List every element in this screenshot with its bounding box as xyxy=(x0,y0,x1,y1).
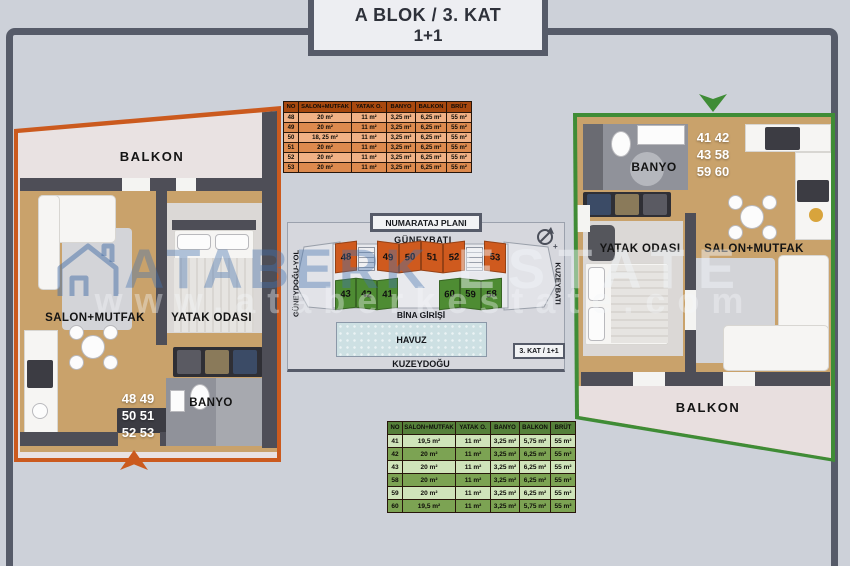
compass-icon: + xyxy=(534,226,560,252)
site-unit-green: 59 xyxy=(460,278,481,311)
table-row: 5018, 25 m²11 m²3,25 m²6,25 m²55 m² xyxy=(284,133,472,143)
table-cell: 3,25 m² xyxy=(491,435,520,448)
table-header: BALKON xyxy=(520,422,551,435)
table-header-row: NOSALON+MUTFAKYATAK O.BANYOBALKONBRÜT xyxy=(284,102,472,113)
table-cell: 3,25 m² xyxy=(491,474,520,487)
table-row: 5820 m²11 m²3,25 m²6,25 m²55 m² xyxy=(388,474,576,487)
right-floorplan: BANYO xyxy=(573,113,835,465)
balcony-door xyxy=(633,372,665,386)
table-row: 4320 m²11 m²3,25 m²6,25 m²55 m² xyxy=(388,461,576,474)
table-cell: 55 m² xyxy=(447,133,472,143)
table-cell: 3,25 m² xyxy=(491,500,520,513)
table-cell: 19,5 m² xyxy=(403,500,456,513)
green-area-table: NOSALON+MUTFAKYATAK O.BANYOBALKONBRÜT411… xyxy=(387,421,576,513)
table-cell: 58 xyxy=(388,474,403,487)
chair-graphic xyxy=(728,195,743,210)
southeast-road-label: GÜNEYDOĞU-YOL xyxy=(292,240,301,328)
orange-area-table: NOSALON+MUTFAKYATAK O.BANYOBALKONBRÜT482… xyxy=(283,101,472,173)
table-cell: 11 m² xyxy=(456,435,491,448)
table-cell: 3,25 m² xyxy=(387,163,416,173)
table-cell: 20 m² xyxy=(299,153,352,163)
wardrobe-graphic xyxy=(205,350,229,374)
balcony-window xyxy=(176,178,196,191)
block-floor-title: A BLOK / 3. KAT xyxy=(355,5,502,26)
northwest-label: KUZEYBATI xyxy=(554,240,563,328)
pool: HAVUZ xyxy=(336,322,487,357)
table-cell: 55 m² xyxy=(447,123,472,133)
chair-graphic xyxy=(103,355,118,370)
site-unit-green: 42 xyxy=(356,278,377,311)
table-header: SALON+MUTFAK xyxy=(403,422,456,435)
numbering-plan-panel: NUMARATAJ PLANI GÜNEYBATI GÜNEYDOĞU-YOL … xyxy=(287,222,565,372)
table-header: BANYO xyxy=(491,422,520,435)
table-cell: 51 xyxy=(284,143,299,153)
table-cell: 6,25 m² xyxy=(416,133,447,143)
table-row: 4820 m²11 m²3,25 m²6,25 m²55 m² xyxy=(284,113,472,123)
site-unit-green: 43 xyxy=(335,278,356,311)
table-cell: 6,25 m² xyxy=(416,143,447,153)
table-cell: 6,25 m² xyxy=(416,153,447,163)
sheet-title-box: A BLOK / 3. KAT 1+1 xyxy=(308,0,548,56)
pillow-graphic xyxy=(588,307,605,341)
table-cell: 41 xyxy=(388,435,403,448)
pillow-graphic xyxy=(588,267,605,301)
wardrobe-niche xyxy=(685,290,696,330)
wall xyxy=(581,372,830,386)
table-cell: 19,5 m² xyxy=(403,435,456,448)
table-cell: 6,25 m² xyxy=(520,461,551,474)
table-cell: 3,25 m² xyxy=(387,123,416,133)
stove-graphic xyxy=(797,180,829,202)
table-cell: 3,25 m² xyxy=(491,448,520,461)
sink-graphic xyxy=(32,403,48,419)
table-cell: 6,25 m² xyxy=(416,123,447,133)
pillow-graphic xyxy=(177,234,211,250)
wardrobe-graphic xyxy=(587,194,611,215)
table-cell: 53 xyxy=(284,163,299,173)
table-cell: 55 m² xyxy=(551,435,576,448)
table-header: BRÜT xyxy=(551,422,576,435)
table-cell: 3,25 m² xyxy=(387,153,416,163)
right-salon-label: SALON+MUTFAK xyxy=(698,243,810,255)
shower-area xyxy=(583,124,603,190)
table-cell: 3,25 m² xyxy=(387,113,416,123)
table-cell: 6,25 m² xyxy=(520,474,551,487)
site-unit-green: 58 xyxy=(481,278,502,311)
wall xyxy=(262,111,278,448)
chair-graphic xyxy=(728,225,743,240)
chair-graphic xyxy=(762,195,777,210)
left-floorplan: BALKON xyxy=(14,103,281,462)
chair-graphic xyxy=(762,225,777,240)
site-unit-orange: 50 xyxy=(399,241,421,274)
table-row: 5220 m²11 m²3,25 m²6,25 m²55 m² xyxy=(284,153,472,163)
site-unit-orange: 53 xyxy=(484,241,506,274)
site-unit-orange: 52 xyxy=(443,241,465,274)
chair-graphic xyxy=(69,325,84,340)
table-cell: 20 m² xyxy=(299,143,352,153)
table-cell: 20 m² xyxy=(299,163,352,173)
table-cell: 11 m² xyxy=(456,474,491,487)
table-header: BALKON xyxy=(416,102,447,113)
table-header: YATAK O. xyxy=(456,422,491,435)
sofa-graphic xyxy=(723,325,829,371)
table-cell: 52 xyxy=(284,153,299,163)
northeast-label: KUZEYDOĞU xyxy=(371,359,471,369)
right-balcony-label: BALKON xyxy=(668,400,748,415)
shower-area xyxy=(216,378,263,446)
table-cell: 50 xyxy=(284,133,299,143)
table-cell: 48 xyxy=(284,113,299,123)
left-bedroom-label: YATAK ODASI xyxy=(164,312,259,324)
table-cell: 6,25 m² xyxy=(520,448,551,461)
left-bath-label: BANYO xyxy=(166,397,256,409)
table-cell: 42 xyxy=(388,448,403,461)
table-cell: 20 m² xyxy=(299,123,352,133)
table-header: SALON+MUTFAK xyxy=(299,102,352,113)
balcony-door xyxy=(122,178,150,191)
site-unit-orange: 51 xyxy=(421,241,443,274)
table-cell: 11 m² xyxy=(352,163,387,173)
dining-table-graphic xyxy=(740,205,764,229)
right-unit-numbers: 41 42 43 58 59 60 xyxy=(685,129,741,180)
table-cell: 3,25 m² xyxy=(387,143,416,153)
table-cell: 43 xyxy=(388,461,403,474)
table-cell: 6,25 m² xyxy=(520,487,551,500)
table-cell: 3,25 m² xyxy=(491,487,520,500)
table-cell: 20 m² xyxy=(299,113,352,123)
wall xyxy=(20,432,118,446)
stairwell-graphic xyxy=(358,247,375,271)
table-header: NO xyxy=(284,102,299,113)
pillow-graphic xyxy=(215,234,249,250)
table-row: 4220 m²11 m²3,25 m²6,25 m²55 m² xyxy=(388,448,576,461)
table-cell: 20 m² xyxy=(403,474,456,487)
fridge-graphic xyxy=(765,127,800,150)
table-header: BANYO xyxy=(387,102,416,113)
table-header: BRÜT xyxy=(447,102,472,113)
left-salon-label: SALON+MUTFAK xyxy=(35,312,155,324)
table-cell: 6,25 m² xyxy=(416,163,447,173)
chair-graphic xyxy=(69,355,84,370)
table-cell: 60 xyxy=(388,500,403,513)
building-entrance-label: BİNA GİRİŞİ xyxy=(371,310,471,320)
table-cell: 20 m² xyxy=(403,487,456,500)
right-bedroom-label: YATAK ODASI xyxy=(590,243,690,255)
unit-type-title: 1+1 xyxy=(414,26,443,46)
pool-label: HAVUZ xyxy=(396,335,426,345)
table-cell: 18, 25 m² xyxy=(299,133,352,143)
bath-sink-graphic xyxy=(637,125,685,145)
left-unit-numbers: 48 49 50 51 52 53 xyxy=(110,390,166,441)
wardrobe-graphic xyxy=(233,350,257,374)
table-cell: 11 m² xyxy=(352,123,387,133)
table-cell: 11 m² xyxy=(352,113,387,123)
table-cell: 55 m² xyxy=(447,163,472,173)
table-cell: 11 m² xyxy=(456,461,491,474)
sofa-graphic xyxy=(38,195,60,290)
table-cell: 3,25 m² xyxy=(387,133,416,143)
site-unit-green: 41 xyxy=(377,278,398,311)
stove-graphic xyxy=(27,360,53,388)
svg-text:+: + xyxy=(553,242,558,251)
decor-graphic xyxy=(809,208,823,222)
floor-badge: 3. KAT / 1+1 xyxy=(513,343,565,359)
site-unit-orange: 49 xyxy=(377,241,399,274)
chair-graphic xyxy=(103,325,118,340)
table-cell: 59 xyxy=(388,487,403,500)
table-cell: 3,25 m² xyxy=(491,461,520,474)
site-unit-green: 60 xyxy=(439,278,460,311)
wardrobe-graphic xyxy=(177,350,201,374)
table-cell: 11 m² xyxy=(352,143,387,153)
dining-table-graphic xyxy=(81,335,105,359)
wardrobe-graphic xyxy=(615,194,639,215)
stairwell-graphic xyxy=(466,247,483,271)
table-header: YATAK O. xyxy=(352,102,387,113)
table-cell: 20 m² xyxy=(403,461,456,474)
right-floorplan-interior: BANYO xyxy=(573,113,835,465)
table-cell: 11 m² xyxy=(352,133,387,143)
table-row: 4920 m²11 m²3,25 m²6,25 m²55 m² xyxy=(284,123,472,133)
toilet-graphic xyxy=(611,131,631,157)
table-row: 5920 m²11 m²3,25 m²6,25 m²55 m² xyxy=(388,487,576,500)
table-cell: 55 m² xyxy=(551,487,576,500)
wall-niche xyxy=(577,205,590,232)
table-cell: 5,75 m² xyxy=(520,435,551,448)
floorplan-sheet: A BLOK / 3. KAT 1+1 BALKON xyxy=(0,0,850,566)
table-cell: 11 m² xyxy=(456,487,491,500)
left-floorplan-interior: BALKON xyxy=(14,103,281,462)
table-cell: 55 m² xyxy=(551,461,576,474)
table-cell: 55 m² xyxy=(551,500,576,513)
site-plan-title: NUMARATAJ PLANI xyxy=(370,213,482,232)
table-cell: 55 m² xyxy=(447,153,472,163)
table-cell: 49 xyxy=(284,123,299,133)
table-cell: 55 m² xyxy=(447,113,472,123)
table-cell: 55 m² xyxy=(551,474,576,487)
table-cell: 55 m² xyxy=(551,448,576,461)
table-header: NO xyxy=(388,422,403,435)
wardrobe-graphic xyxy=(643,194,667,215)
blanket-graphic xyxy=(611,265,668,343)
table-row: 5120 m²11 m²3,25 m²6,25 m²55 m² xyxy=(284,143,472,153)
table-cell: 5,75 m² xyxy=(520,500,551,513)
table-row: 4119,5 m²11 m²3,25 m²5,75 m²55 m² xyxy=(388,435,576,448)
balcony-window xyxy=(723,372,755,386)
bed-headboard-graphic xyxy=(172,220,256,230)
site-unit-orange: 48 xyxy=(335,241,357,274)
table-row: 5320 m²11 m²3,25 m²6,25 m²55 m² xyxy=(284,163,472,173)
table-cell: 6,25 m² xyxy=(416,113,447,123)
table-header-row: NOSALON+MUTFAKYATAK O.BANYOBALKONBRÜT xyxy=(388,422,576,435)
right-bath-label: BANYO xyxy=(623,160,685,174)
table-cell: 11 m² xyxy=(456,500,491,513)
table-cell: 11 m² xyxy=(456,448,491,461)
table-cell: 55 m² xyxy=(447,143,472,153)
table-cell: 11 m² xyxy=(352,153,387,163)
table-cell: 20 m² xyxy=(403,448,456,461)
left-balcony-label: BALKON xyxy=(102,149,202,164)
table-row: 6019,5 m²11 m²3,25 m²5,75 m²55 m² xyxy=(388,500,576,513)
